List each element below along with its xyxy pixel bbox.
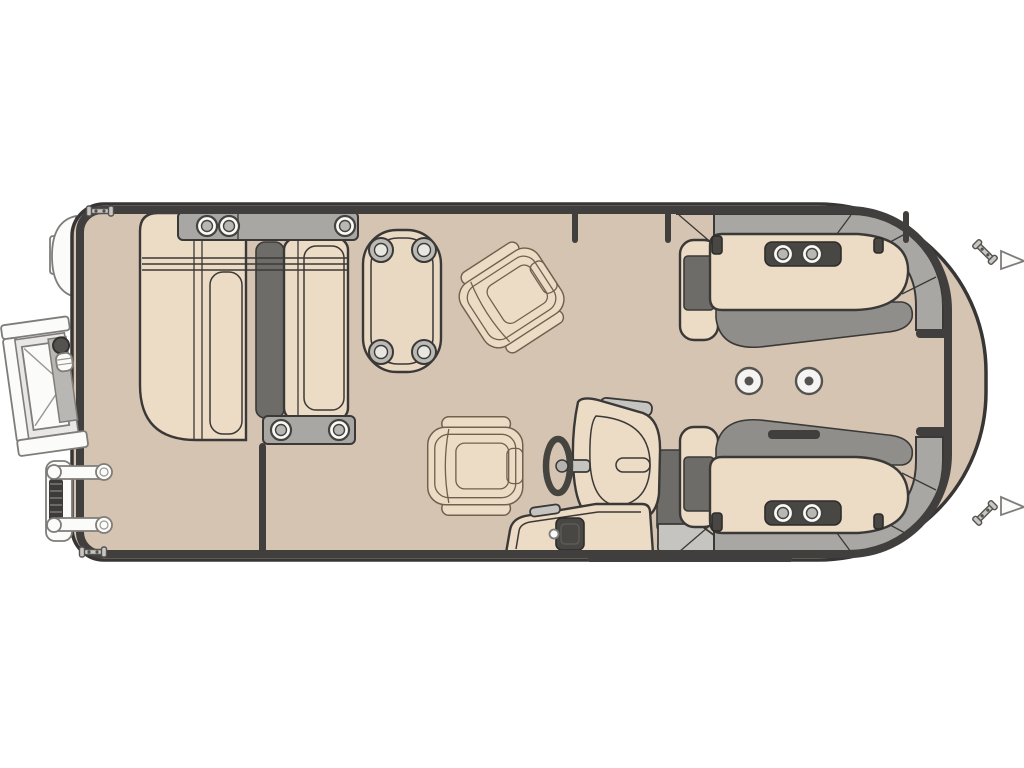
gate-hinge (52, 336, 70, 354)
fence-post (903, 211, 909, 243)
transom-bar (588, 551, 792, 562)
floorplan-svg (0, 0, 1024, 768)
cleat-icon (972, 500, 998, 526)
stern-tow-eyes (1001, 251, 1024, 515)
stern-lounge-port (676, 214, 943, 347)
pontoon-floorplan-image (0, 0, 1024, 768)
stern-lounge-starboard (657, 420, 943, 553)
bow-lounge (140, 213, 246, 440)
captain-chair (428, 417, 523, 516)
fence-post (665, 211, 671, 243)
fence-post (572, 211, 578, 243)
fence-dash (259, 443, 266, 556)
fence-dash (768, 430, 820, 439)
throttle-control (556, 518, 584, 550)
bow-bench (256, 238, 348, 420)
cleat-icon (972, 239, 998, 265)
fence-dash (916, 329, 948, 338)
fence-dash (916, 427, 948, 436)
